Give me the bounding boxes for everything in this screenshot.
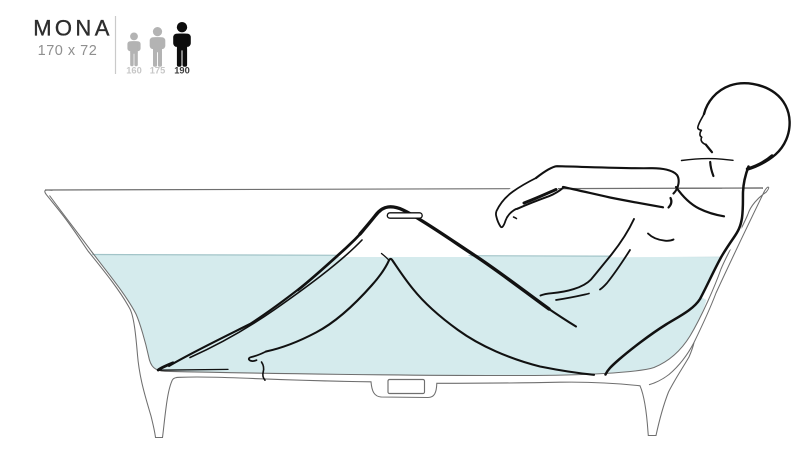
svg-text:190: 190 [174,66,190,76]
svg-text:175: 175 [150,66,166,76]
svg-text:170 x 72: 170 x 72 [38,43,98,59]
svg-text:MONA: MONA [33,16,113,41]
svg-text:160: 160 [126,66,142,76]
